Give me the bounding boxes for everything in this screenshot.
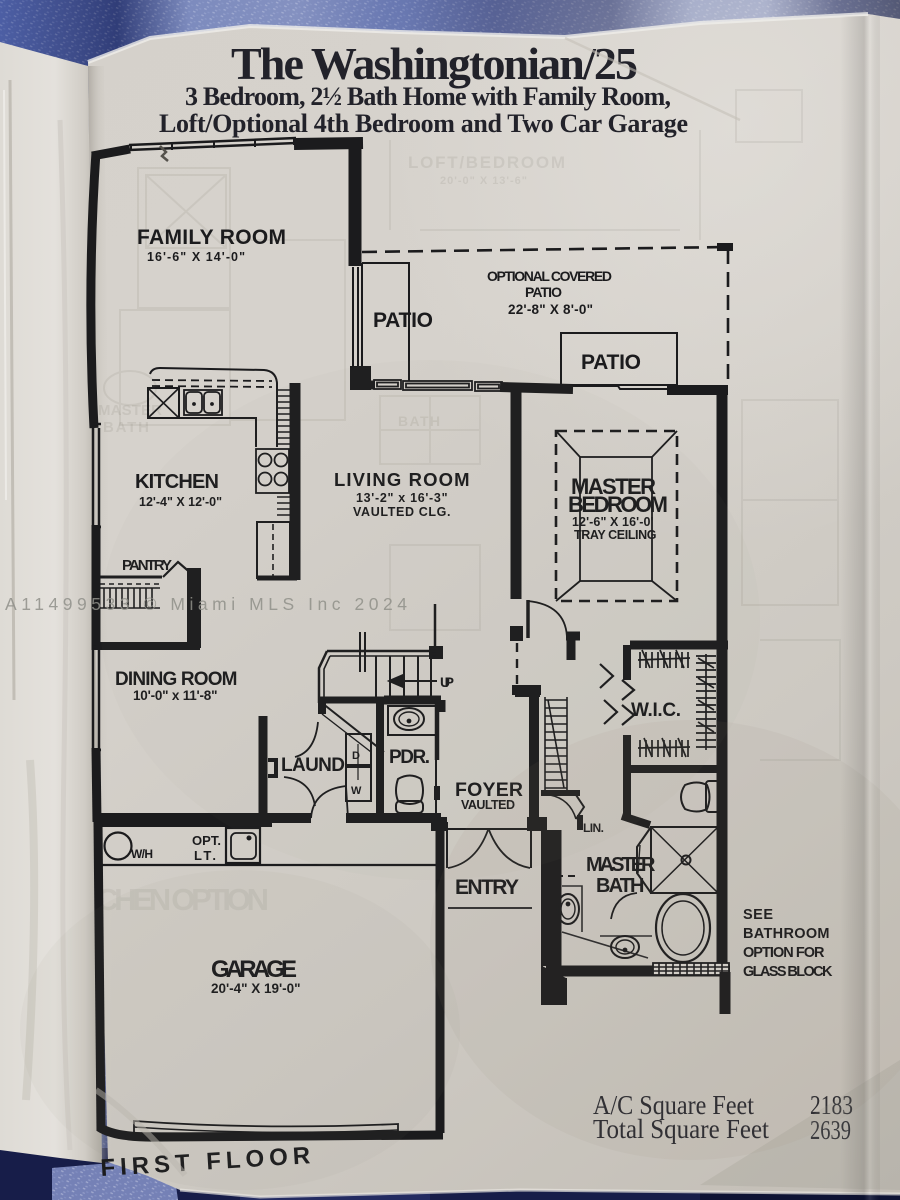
svg-text:20'-0" X 13'-6": 20'-0" X 13'-6" xyxy=(440,175,528,187)
svg-text:BATH: BATH xyxy=(103,419,151,436)
svg-text:FAMILY ROOM: FAMILY ROOM xyxy=(137,226,288,249)
svg-text:OPT.: OPT. xyxy=(192,833,221,848)
svg-text:PATIO: PATIO xyxy=(525,284,563,300)
svg-text:W/H: W/H xyxy=(131,847,153,861)
svg-text:16'-6" X 14'-0": 16'-6" X 14'-0" xyxy=(147,250,246,264)
svg-text:PATIO: PATIO xyxy=(581,351,643,374)
svg-text:LT.: LT. xyxy=(194,848,216,863)
svg-text:PATIO: PATIO xyxy=(373,309,435,332)
svg-text:MASTER: MASTER xyxy=(98,402,164,419)
svg-text:Loft/Optional 4th Bedroom and: Loft/Optional 4th Bedroom and Two Car Ga… xyxy=(159,109,688,138)
svg-text:3 Bedroom, 2½ Bath Home with F: 3 Bedroom, 2½ Bath Home with Family Room… xyxy=(185,82,671,111)
svg-text:LOFT/BEDROOM: LOFT/BEDROOM xyxy=(408,153,568,172)
svg-text:OPTIONAL COVERED: OPTIONAL COVERED xyxy=(487,268,613,284)
svg-text:22'-8" X 8'-0": 22'-8" X 8'-0" xyxy=(508,302,594,317)
